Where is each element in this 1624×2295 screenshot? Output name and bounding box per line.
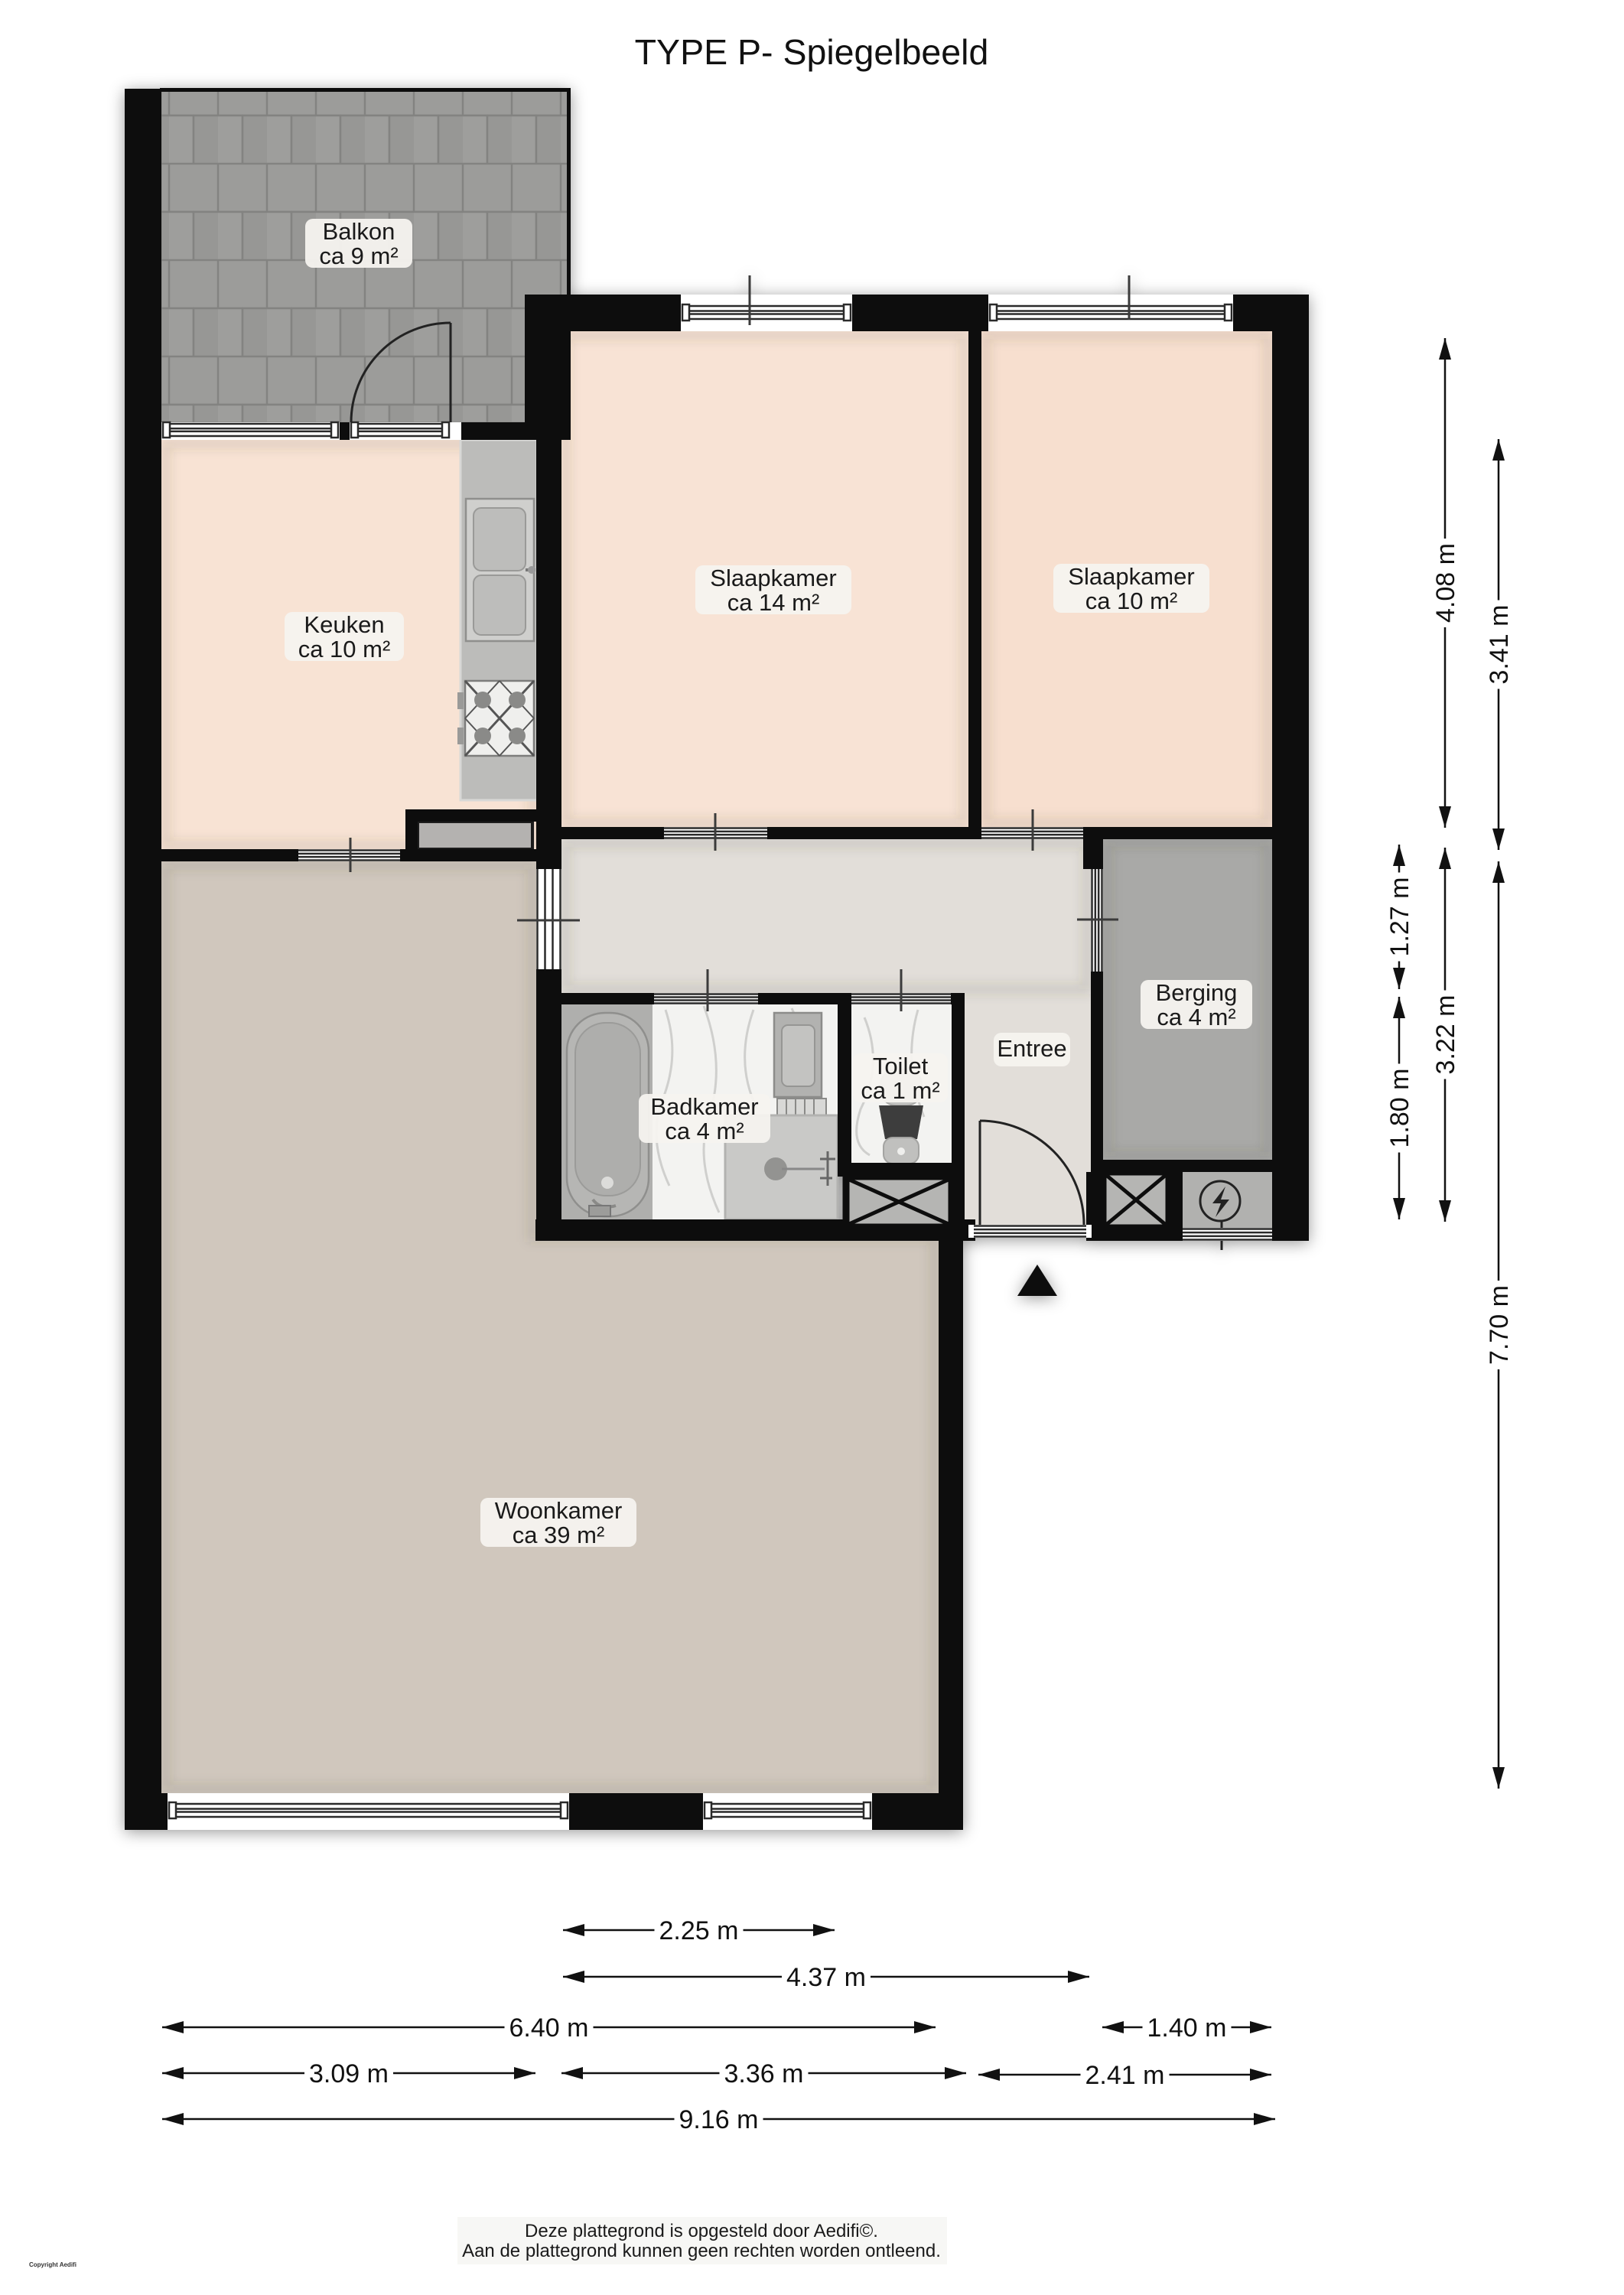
svg-text:Toilet: Toilet <box>873 1053 929 1079</box>
svg-text:1.40 m: 1.40 m <box>1147 2013 1227 2043</box>
svg-text:2.25 m: 2.25 m <box>659 1916 739 1945</box>
svg-text:2.41 m: 2.41 m <box>1085 2061 1165 2090</box>
svg-text:1.80 m: 1.80 m <box>1385 1069 1414 1148</box>
svg-text:4.08 m: 4.08 m <box>1431 543 1460 623</box>
svg-text:ca 10 m²: ca 10 m² <box>298 636 391 662</box>
svg-text:Slaapkamer: Slaapkamer <box>1068 563 1194 590</box>
svg-text:3.36 m: 3.36 m <box>724 2059 804 2088</box>
svg-text:ca 14 m²: ca 14 m² <box>727 589 820 616</box>
svg-text:1.27 m: 1.27 m <box>1385 877 1414 957</box>
svg-text:4.37 m: 4.37 m <box>786 1963 866 1992</box>
svg-text:Slaapkamer: Slaapkamer <box>710 565 836 591</box>
svg-text:ca 4 m²: ca 4 m² <box>1157 1004 1235 1030</box>
svg-text:ca 4 m²: ca 4 m² <box>665 1118 744 1144</box>
svg-text:3.22 m: 3.22 m <box>1431 995 1460 1075</box>
svg-text:ca 10 m²: ca 10 m² <box>1085 588 1178 614</box>
svg-text:ca 1 m²: ca 1 m² <box>861 1077 939 1104</box>
svg-text:ca 39 m²: ca 39 m² <box>513 1522 605 1548</box>
svg-text:ca 9 m²: ca 9 m² <box>319 243 398 269</box>
svg-text:6.40 m: 6.40 m <box>509 2013 589 2043</box>
svg-text:Aan de plattegrond kunnen geen: Aan de plattegrond kunnen geen rechten w… <box>462 2241 941 2261</box>
svg-text:3.09 m: 3.09 m <box>309 2059 389 2088</box>
svg-text:Woonkamer: Woonkamer <box>495 1497 623 1524</box>
svg-text:Entree: Entree <box>997 1035 1066 1062</box>
svg-text:Balkon: Balkon <box>323 218 395 245</box>
svg-text:3.41 m: 3.41 m <box>1485 605 1514 685</box>
svg-text:Keuken: Keuken <box>304 611 384 638</box>
svg-text:Berging: Berging <box>1156 979 1238 1006</box>
svg-text:9.16 m: 9.16 m <box>679 2105 759 2134</box>
svg-text:TYPE P- Spiegelbeeld: TYPE P- Spiegelbeeld <box>635 32 989 72</box>
svg-text:Deze plattegrond is opgesteld: Deze plattegrond is opgesteld door Aedif… <box>525 2221 878 2241</box>
svg-text:Badkamer: Badkamer <box>650 1093 758 1120</box>
svg-text:7.70 m: 7.70 m <box>1485 1285 1514 1365</box>
svg-text:Copyright Aedifi: Copyright Aedifi <box>29 2261 76 2268</box>
